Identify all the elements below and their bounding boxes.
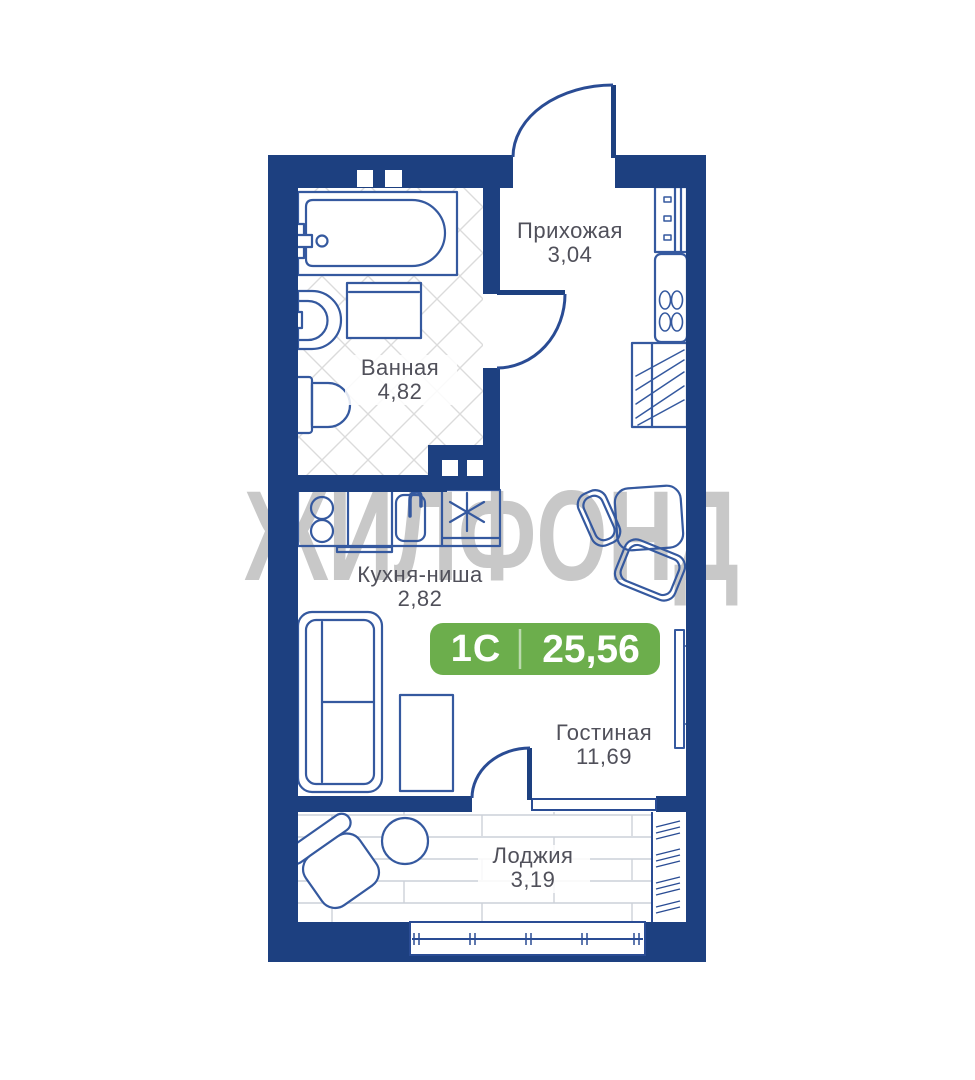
loggia-area: 3,19 — [511, 867, 556, 892]
loggia-door-panel — [527, 748, 532, 800]
vent-duct-icon — [442, 460, 458, 476]
vent-duct-icon — [467, 460, 483, 476]
bathroom-area: 4,82 — [378, 379, 423, 404]
floor-plan-image: ЖИЛФОНД — [0, 0, 975, 1080]
wall-loggia-right — [656, 796, 686, 812]
living-label: Гостиная — [556, 720, 652, 745]
wall-bathroom-right-top — [483, 188, 500, 294]
wall-left — [268, 155, 298, 962]
bathroom-sink — [291, 291, 341, 349]
hallway-label: Прихожая — [517, 218, 623, 243]
wall-bottom-right — [645, 922, 706, 962]
washing-machine — [347, 283, 421, 338]
bathroom-door-panel — [497, 290, 565, 295]
wall-right — [686, 155, 706, 962]
kitchen-label: Кухня-ниша — [357, 562, 483, 587]
area-badge: 1С 25,56 — [430, 623, 660, 675]
bathtub — [288, 192, 457, 275]
loggia-outer-window — [410, 922, 645, 955]
hallway-area: 3,04 — [548, 242, 593, 267]
wall-loggia-left — [268, 796, 472, 812]
badge-total-area: 25,56 — [542, 628, 640, 671]
wall-bathroom-bottom — [268, 475, 447, 492]
bathroom-label: Ванная — [361, 355, 439, 380]
loggia-door-window — [532, 799, 656, 810]
entry-door-panel — [611, 85, 616, 158]
kitchen-area: 2,82 — [398, 586, 443, 611]
floor-plan-svg: ЖИЛФОНД — [0, 0, 975, 1080]
badge-type: 1С — [451, 628, 502, 670]
vent-duct-icon — [385, 170, 402, 187]
loggia-table — [382, 818, 428, 864]
living-area: 11,69 — [576, 744, 632, 769]
vent-duct-icon — [357, 170, 373, 187]
wall-bottom-left — [268, 922, 410, 962]
loggia-label: Лоджия — [493, 843, 574, 868]
